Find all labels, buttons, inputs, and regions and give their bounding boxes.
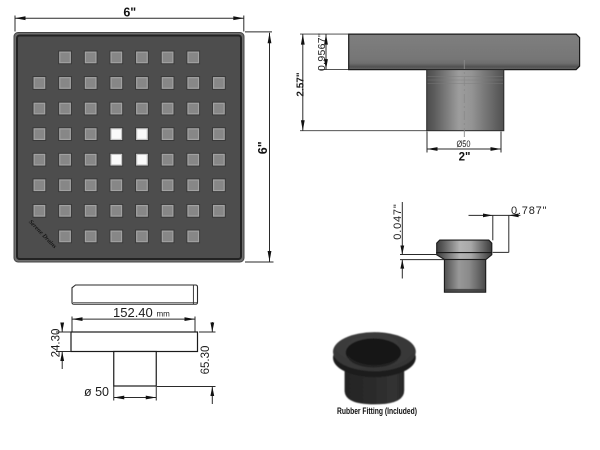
svg-text:24.30: 24.30 [50,329,62,358]
svg-text:2": 2" [459,152,471,164]
svg-text:2.57": 2.57" [296,72,307,96]
svg-text:Rubber Fitting (Included): Rubber Fitting (Included) [337,406,417,416]
svg-text:mm: mm [157,310,171,319]
svg-text:6": 6" [256,141,270,154]
svg-text:ø 50: ø 50 [84,385,109,399]
svg-text:0.047": 0.047" [392,203,404,239]
svg-text:6": 6" [123,6,136,20]
svg-text:Ø50: Ø50 [457,139,471,150]
svg-text:0.787": 0.787" [511,205,547,217]
svg-text:152.40: 152.40 [113,305,153,320]
svg-text:65.30: 65.30 [200,346,212,375]
svg-text:0.9567": 0.9567" [316,33,328,71]
